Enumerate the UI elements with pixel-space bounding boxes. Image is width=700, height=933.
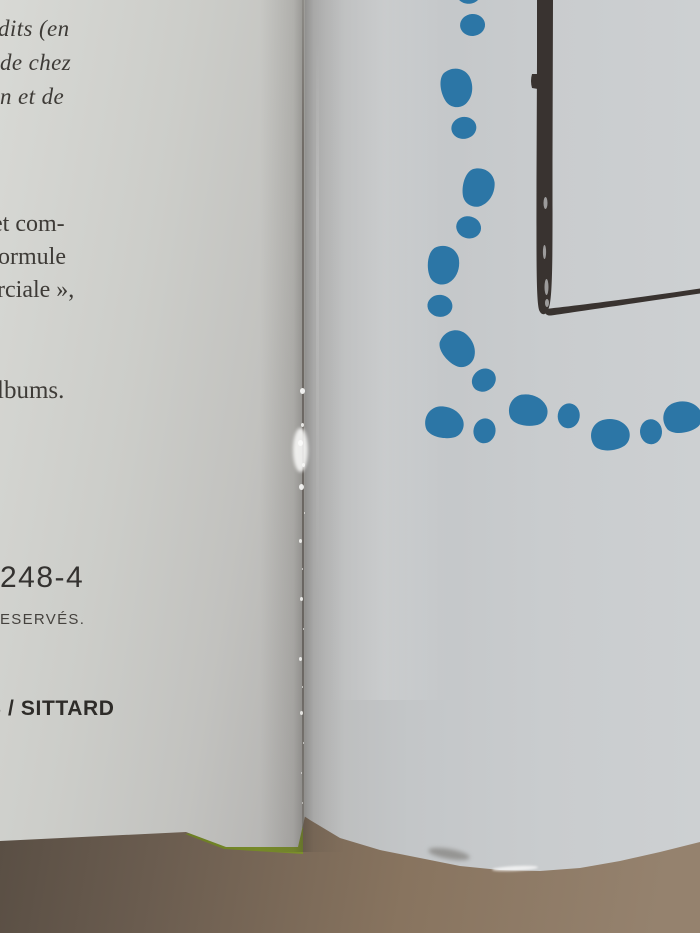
footprint <box>422 244 461 318</box>
frame-bottom-line <box>545 289 700 316</box>
footprint <box>434 324 502 399</box>
open-book-photo: dits (en de chez n et de et com- ormule … <box>0 0 700 933</box>
footprint <box>452 0 488 37</box>
footprint <box>662 396 700 435</box>
footprints-illustration <box>0 0 700 933</box>
footprints-trail <box>422 0 700 451</box>
frame-bar-bump <box>531 74 538 89</box>
footprint <box>438 66 480 141</box>
footprint <box>422 403 498 450</box>
footprint <box>590 416 663 451</box>
footprint <box>450 165 499 242</box>
frame-vertical-bar <box>536 0 553 314</box>
footprint <box>507 392 582 434</box>
